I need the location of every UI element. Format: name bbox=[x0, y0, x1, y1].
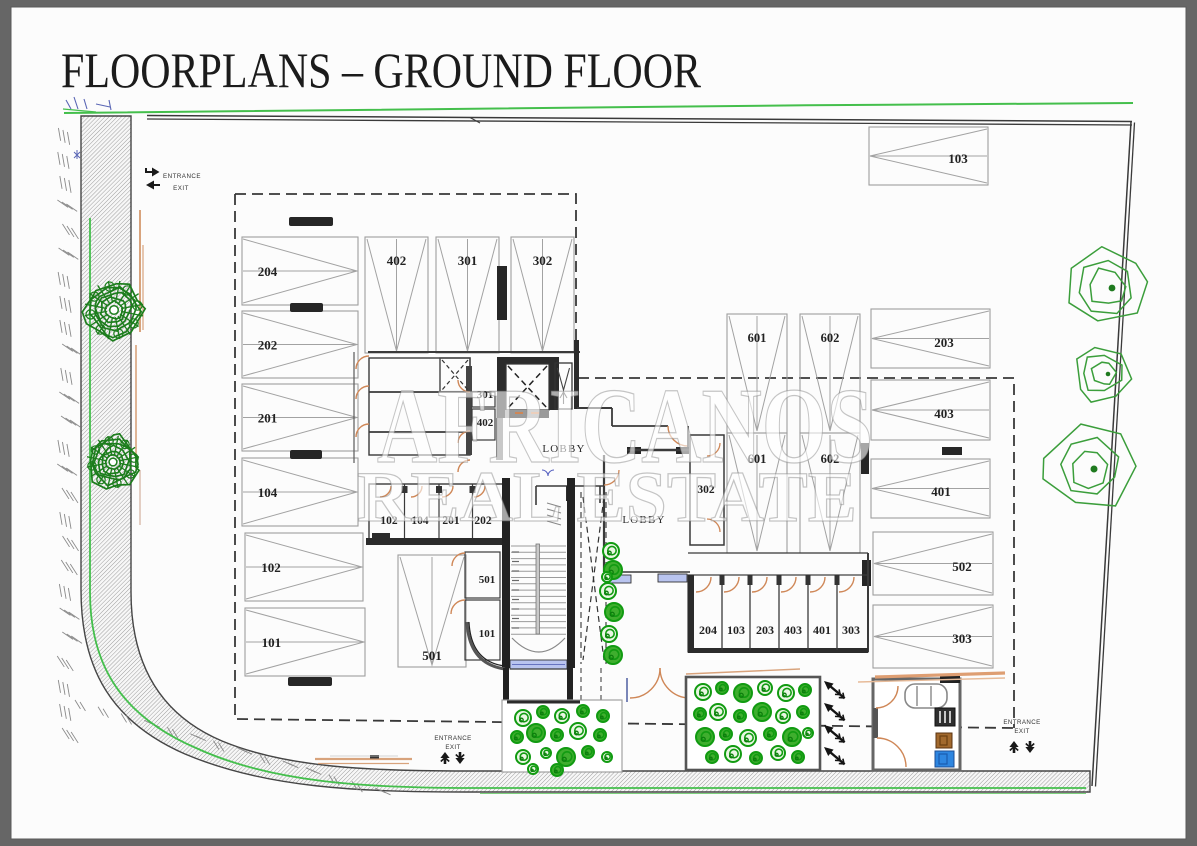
svg-text:403: 403 bbox=[784, 623, 802, 637]
svg-text:102: 102 bbox=[261, 560, 281, 575]
svg-text:303: 303 bbox=[952, 631, 972, 646]
svg-text:401: 401 bbox=[813, 623, 831, 637]
svg-text:401: 401 bbox=[931, 484, 951, 499]
svg-text:501: 501 bbox=[422, 648, 442, 663]
svg-text:ENTRANCE: ENTRANCE bbox=[163, 173, 201, 180]
svg-text:301: 301 bbox=[458, 253, 478, 268]
svg-text:EXIT: EXIT bbox=[173, 185, 189, 192]
svg-text:202: 202 bbox=[258, 338, 278, 353]
svg-text:203: 203 bbox=[934, 335, 954, 350]
svg-text:303: 303 bbox=[842, 623, 860, 637]
svg-text:201: 201 bbox=[258, 411, 278, 426]
svg-text:302: 302 bbox=[533, 253, 553, 268]
svg-text:204: 204 bbox=[258, 264, 278, 279]
svg-text:403: 403 bbox=[934, 406, 954, 421]
svg-text:103: 103 bbox=[948, 151, 968, 166]
svg-text:501: 501 bbox=[479, 574, 496, 586]
svg-text:EXIT: EXIT bbox=[1014, 728, 1029, 735]
svg-text:203: 203 bbox=[756, 623, 774, 637]
svg-text:104: 104 bbox=[258, 485, 278, 500]
svg-text:402: 402 bbox=[387, 253, 407, 268]
svg-text:502: 502 bbox=[952, 559, 972, 574]
svg-text:FLOORPLANS – GROUND FLOOR: FLOORPLANS – GROUND FLOOR bbox=[61, 42, 702, 98]
svg-text:204: 204 bbox=[699, 623, 717, 637]
svg-text:602: 602 bbox=[821, 331, 840, 345]
svg-text:EXIT: EXIT bbox=[445, 744, 460, 751]
svg-text:101: 101 bbox=[479, 628, 496, 640]
svg-text:ENTRANCE: ENTRANCE bbox=[434, 735, 471, 742]
svg-text:101: 101 bbox=[262, 635, 282, 650]
svg-text:601: 601 bbox=[748, 331, 767, 345]
svg-text:ENTRANCE: ENTRANCE bbox=[1003, 719, 1040, 726]
svg-text:REAL ESTATE: REAL ESTATE bbox=[357, 457, 857, 537]
svg-text:103: 103 bbox=[727, 623, 745, 637]
